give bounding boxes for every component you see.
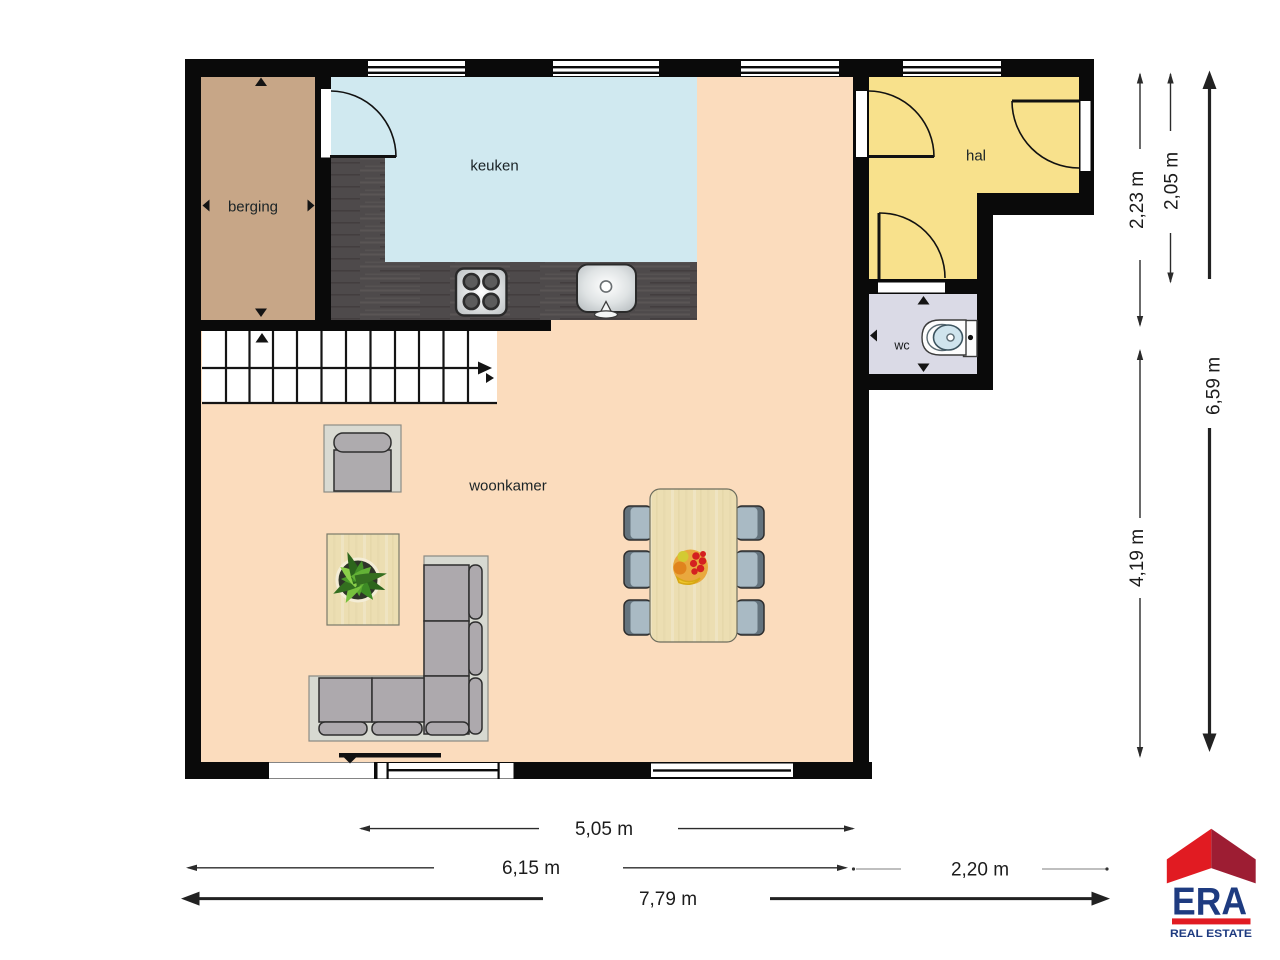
svg-text:6,59 m: 6,59 m — [1204, 357, 1225, 415]
svg-text:ERA: ERA — [1172, 881, 1247, 924]
svg-text:REAL ESTATE: REAL ESTATE — [1170, 928, 1252, 940]
svg-text:2,23 m: 2,23 m — [1127, 171, 1148, 229]
svg-text:woonkamer: woonkamer — [468, 478, 547, 495]
svg-text:2,05 m: 2,05 m — [1162, 152, 1183, 210]
svg-text:wc: wc — [893, 339, 909, 353]
svg-text:5,05 m: 5,05 m — [575, 819, 633, 840]
svg-text:6,15 m: 6,15 m — [502, 858, 560, 879]
svg-text:7,79 m: 7,79 m — [639, 889, 697, 910]
svg-text:berging: berging — [228, 199, 278, 216]
svg-text:hal: hal — [966, 148, 986, 165]
svg-text:4,19 m: 4,19 m — [1127, 529, 1148, 587]
svg-text:2,20 m: 2,20 m — [951, 859, 1009, 880]
svg-text:keuken: keuken — [470, 158, 518, 175]
